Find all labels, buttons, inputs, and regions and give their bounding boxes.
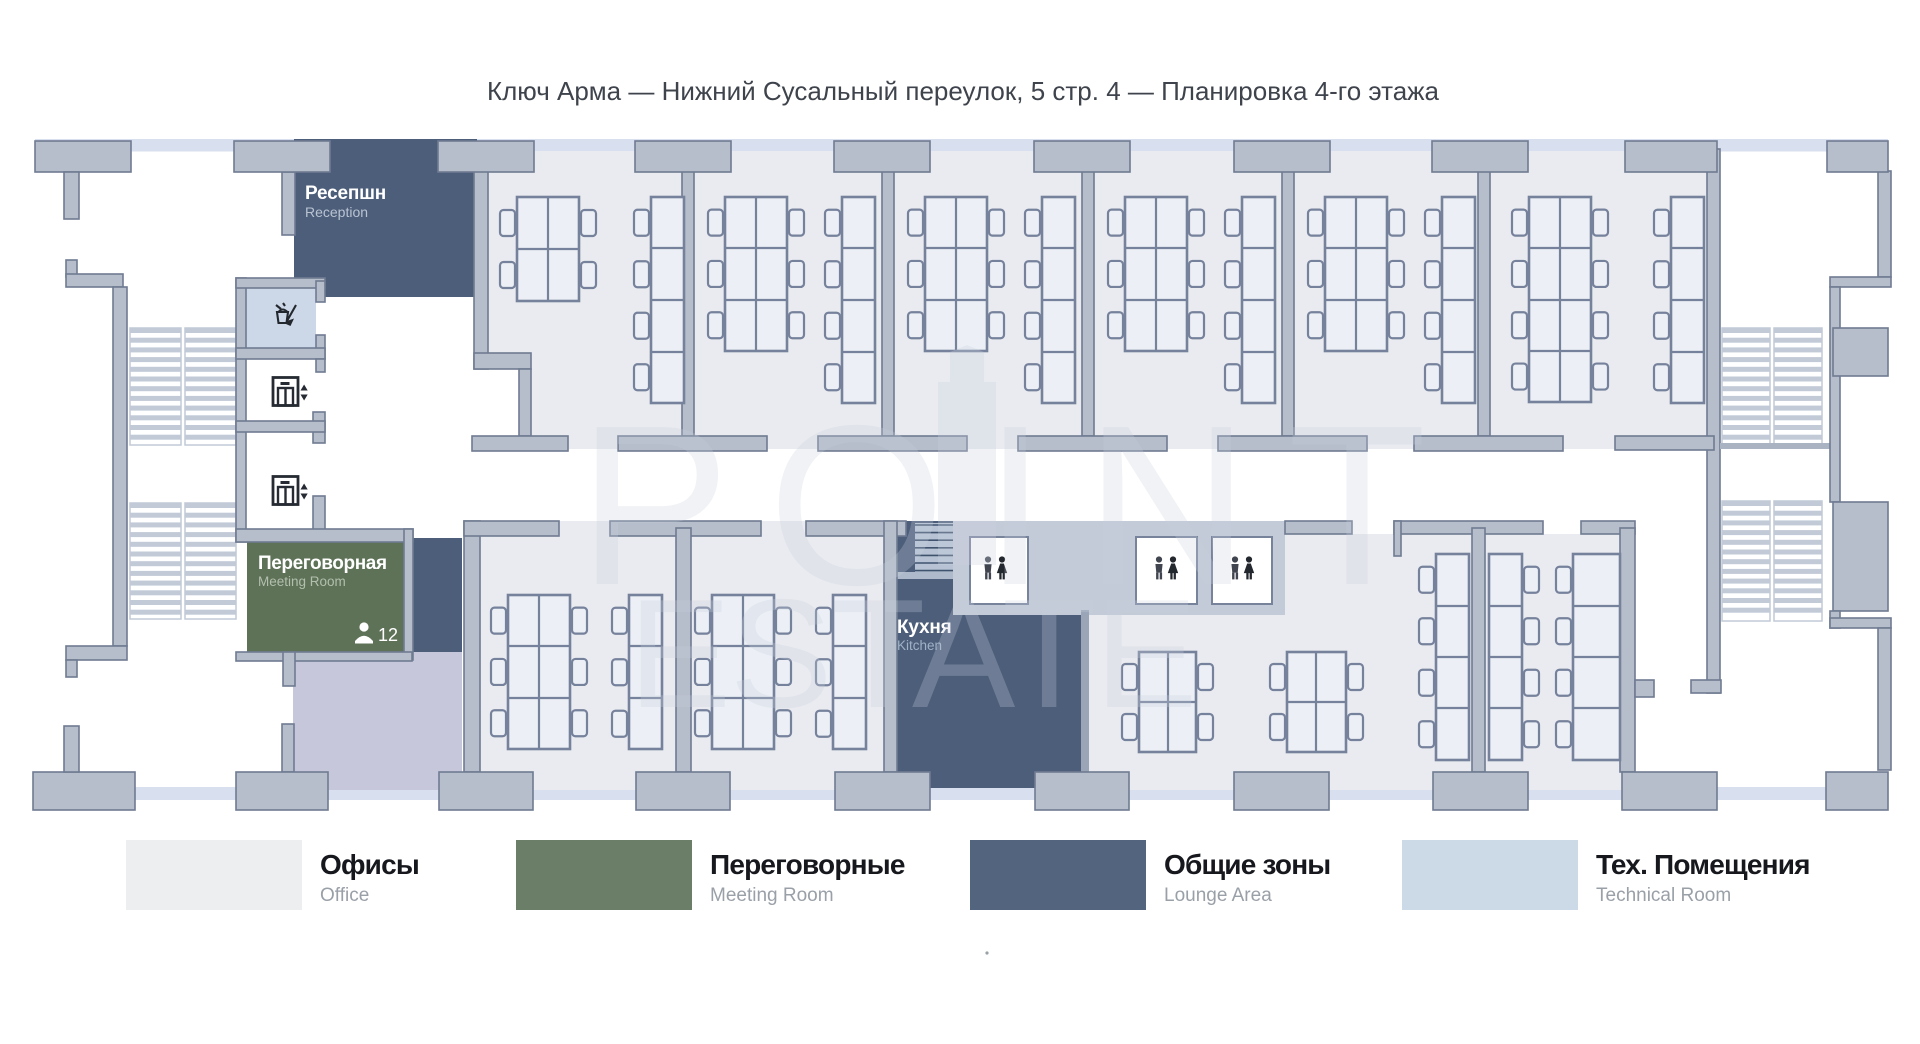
svg-text:12: 12	[378, 625, 398, 645]
svg-text:Reception: Reception	[305, 204, 368, 220]
svg-text:Ключ Арма — Нижний Сусальный п: Ключ Арма — Нижний Сусальный переулок, 5…	[487, 76, 1440, 106]
svg-text:Meeting Room: Meeting Room	[710, 885, 834, 906]
svg-text:Office: Office	[320, 885, 369, 906]
svg-text:ESTATE: ESTATE	[628, 567, 1196, 740]
svg-text:Офисы: Офисы	[320, 849, 419, 880]
svg-text:Переговорная: Переговорная	[258, 553, 387, 574]
svg-text:Technical Room: Technical Room	[1596, 885, 1731, 906]
svg-text:Ресепшн: Ресепшн	[305, 183, 386, 204]
svg-text:Meeting Room: Meeting Room	[258, 574, 346, 589]
svg-text:Lounge Area: Lounge Area	[1164, 885, 1272, 906]
svg-text:Переговорные: Переговорные	[710, 849, 905, 880]
svg-text:Общие зоны: Общие зоны	[1164, 849, 1330, 880]
svg-text:Тех. Помещения: Тех. Помещения	[1596, 849, 1810, 880]
